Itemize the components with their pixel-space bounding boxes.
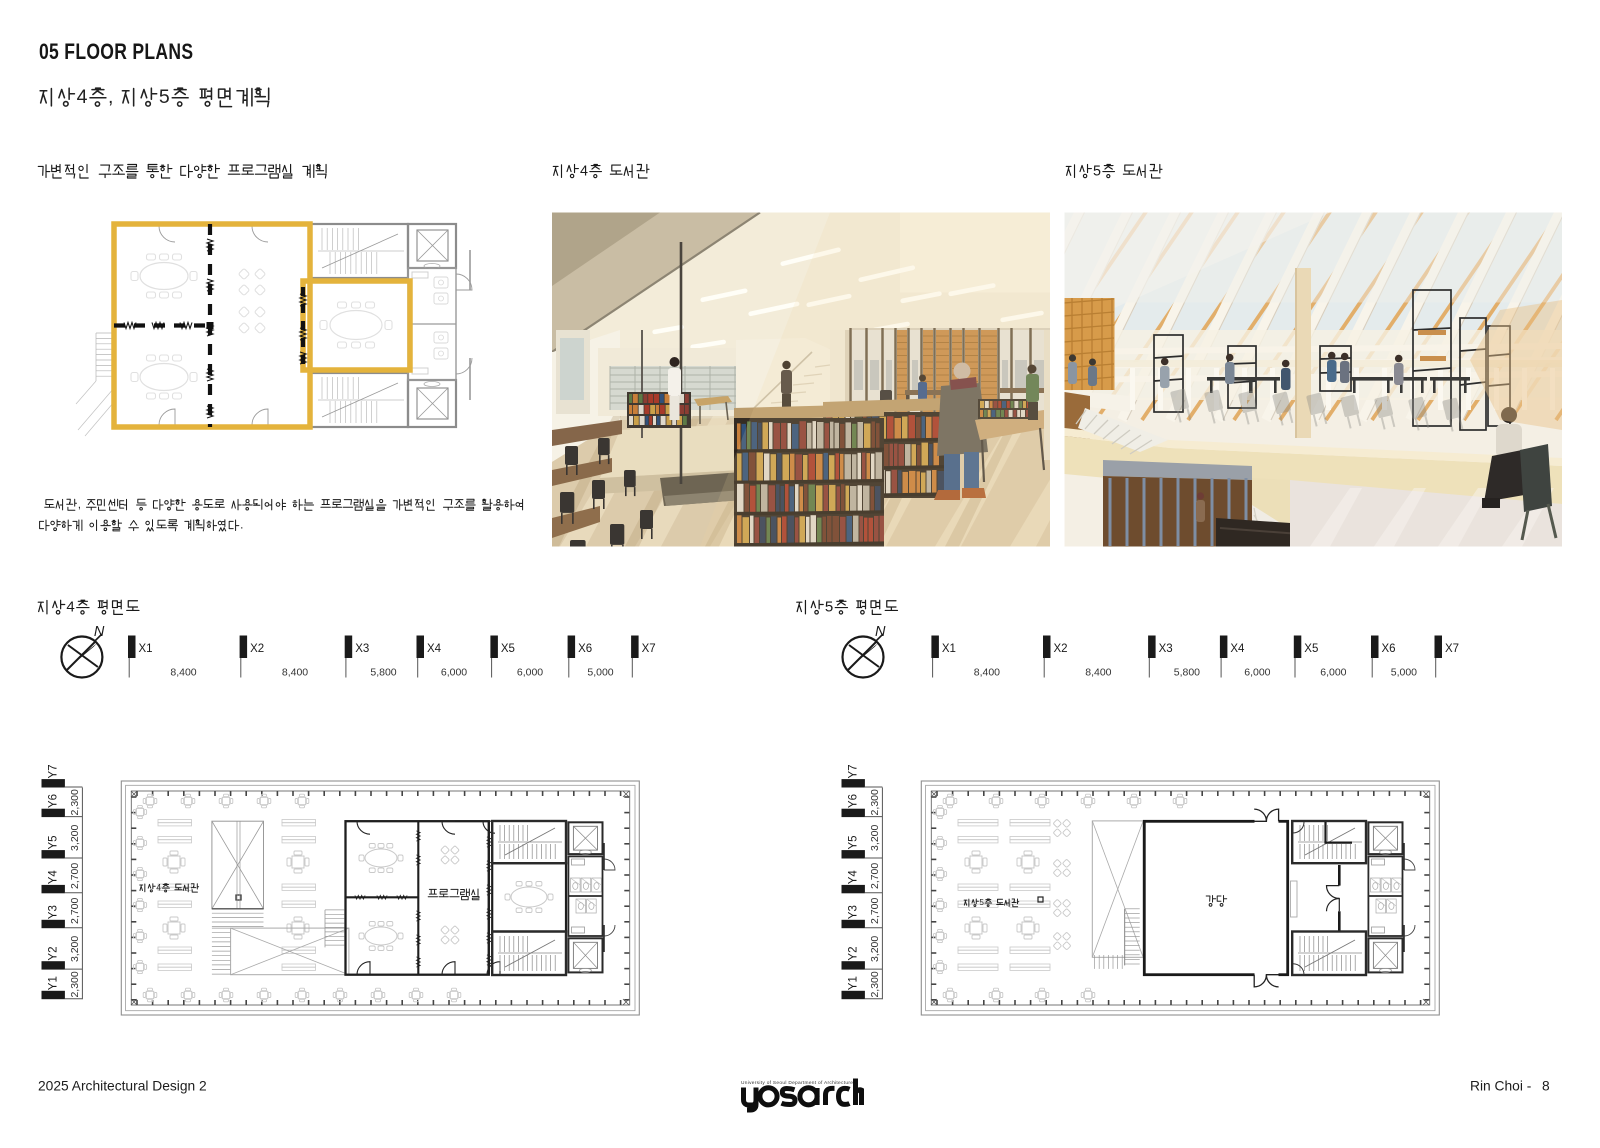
svg-text:8,400: 8,400	[170, 667, 196, 679]
svg-text:2,700: 2,700	[869, 863, 881, 889]
svg-text:Y2: Y2	[48, 947, 60, 961]
svg-text:2,300: 2,300	[869, 789, 881, 815]
svg-text:8,400: 8,400	[1085, 667, 1111, 679]
svg-text:4: 4	[580, 163, 588, 179]
svg-text:X2: X2	[250, 643, 264, 655]
svg-text:5,800: 5,800	[370, 667, 396, 679]
svg-text:6,000: 6,000	[517, 667, 543, 679]
svg-text:X6: X6	[1382, 643, 1396, 655]
svg-text:Y3: Y3	[48, 905, 60, 919]
svg-text:2,300: 2,300	[69, 789, 81, 815]
svg-text:2,700: 2,700	[69, 898, 81, 924]
svg-text:Y5: Y5	[48, 835, 60, 849]
svg-text:3,200: 3,200	[69, 825, 81, 851]
svg-text:3,200: 3,200	[869, 936, 881, 962]
svg-text:X7: X7	[642, 643, 656, 655]
svg-text:8: 8	[1542, 1079, 1550, 1094]
svg-text:3,200: 3,200	[69, 936, 81, 962]
svg-text:N: N	[875, 624, 886, 640]
svg-text:6,000: 6,000	[441, 667, 467, 679]
svg-text:6,000: 6,000	[1244, 667, 1270, 679]
svg-text:X1: X1	[942, 643, 956, 655]
svg-text:X6: X6	[578, 643, 592, 655]
svg-text:8,400: 8,400	[974, 667, 1000, 679]
svg-text:,: ,	[108, 86, 113, 108]
svg-text:8,400: 8,400	[282, 667, 308, 679]
svg-text:,: ,	[78, 498, 81, 511]
svg-text:3,200: 3,200	[869, 825, 881, 851]
svg-text:Y7: Y7	[48, 764, 60, 778]
svg-text:X5: X5	[501, 643, 515, 655]
svg-text:2,300: 2,300	[69, 971, 81, 997]
svg-text:X2: X2	[1054, 643, 1068, 655]
svg-text:X4: X4	[1230, 643, 1245, 655]
svg-text:2,700: 2,700	[869, 898, 881, 924]
svg-text:2,700: 2,700	[69, 863, 81, 889]
svg-text:X4: X4	[427, 643, 442, 655]
svg-text:05 FLOOR PLANS: 05 FLOOR PLANS	[39, 40, 193, 65]
svg-text:Y6: Y6	[848, 794, 860, 808]
svg-text:5: 5	[825, 599, 833, 616]
svg-text:5: 5	[979, 898, 984, 907]
svg-text:Y3: Y3	[848, 905, 860, 919]
svg-text:X5: X5	[1304, 643, 1318, 655]
svg-text:N: N	[94, 624, 105, 640]
svg-text:X3: X3	[1159, 643, 1173, 655]
svg-text:Y7: Y7	[848, 764, 860, 778]
svg-text:.: .	[240, 519, 243, 532]
svg-text:2,300: 2,300	[869, 971, 881, 997]
svg-text:X3: X3	[355, 643, 369, 655]
svg-text:4: 4	[156, 882, 161, 892]
svg-text:Rin Choi -: Rin Choi -	[1470, 1079, 1531, 1094]
svg-text:X7: X7	[1445, 643, 1459, 655]
svg-text:5,000: 5,000	[1391, 667, 1417, 679]
svg-text:Y2: Y2	[848, 947, 860, 961]
svg-text:Y1: Y1	[48, 976, 60, 990]
svg-text:5,800: 5,800	[1174, 667, 1200, 679]
svg-text:2025 Architectural Design 2: 2025 Architectural Design 2	[38, 1079, 207, 1094]
svg-text:Y5: Y5	[848, 835, 860, 849]
svg-text:4: 4	[77, 86, 88, 108]
svg-text:5: 5	[159, 86, 170, 108]
svg-text:Y6: Y6	[48, 794, 60, 808]
svg-text:Y1: Y1	[848, 976, 860, 990]
svg-text:5: 5	[1093, 163, 1101, 179]
svg-text:Y4: Y4	[848, 870, 860, 885]
svg-text:X1: X1	[139, 643, 153, 655]
svg-text:Y4: Y4	[48, 870, 60, 885]
svg-text:6,000: 6,000	[1320, 667, 1346, 679]
svg-text:5,000: 5,000	[587, 667, 613, 679]
svg-text:University of Seoul Department: University of Seoul Department of Archit…	[741, 1080, 853, 1086]
svg-text:4: 4	[66, 599, 74, 616]
